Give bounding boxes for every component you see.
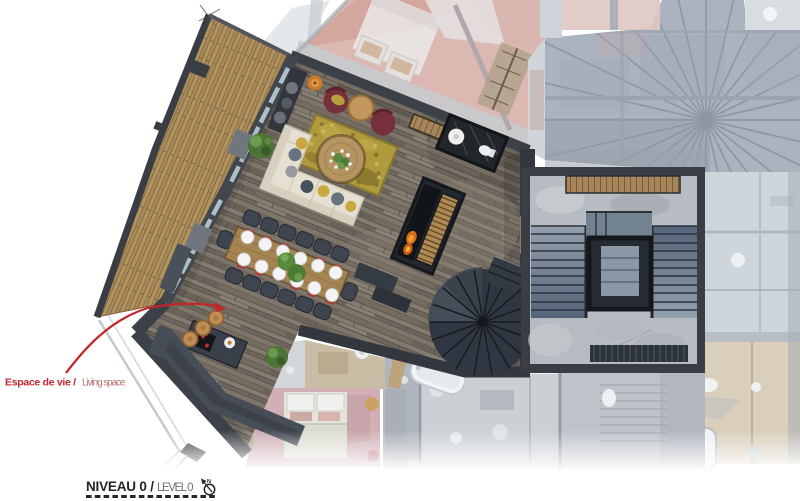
svg-text:N: N: [207, 479, 211, 485]
svg-text:NIVEAU 0 /: NIVEAU 0 /: [86, 479, 154, 494]
svg-text:LEVEL 0: LEVEL 0: [157, 482, 193, 494]
svg-text:Espace de vie /: Espace de vie /: [5, 377, 76, 389]
svg-text:Living space: Living space: [82, 378, 126, 389]
